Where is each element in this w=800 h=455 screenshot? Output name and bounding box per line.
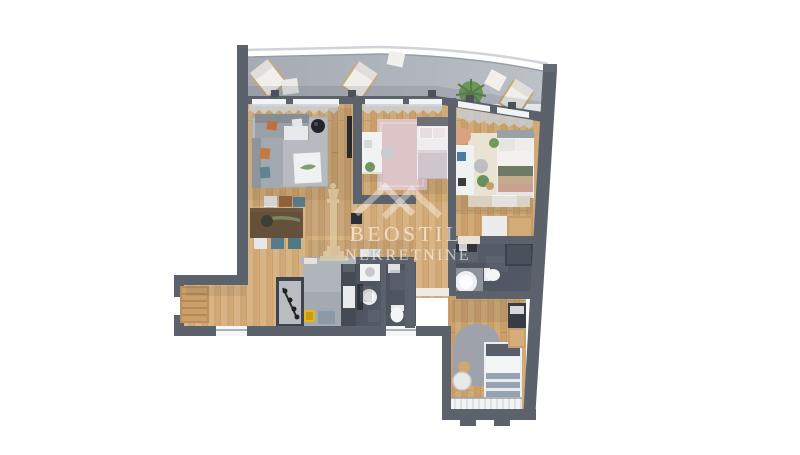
svg-text:NEKRETNINE: NEKRETNINE: [345, 245, 471, 264]
svg-text:BEOSTIL: BEOSTIL: [350, 222, 463, 246]
